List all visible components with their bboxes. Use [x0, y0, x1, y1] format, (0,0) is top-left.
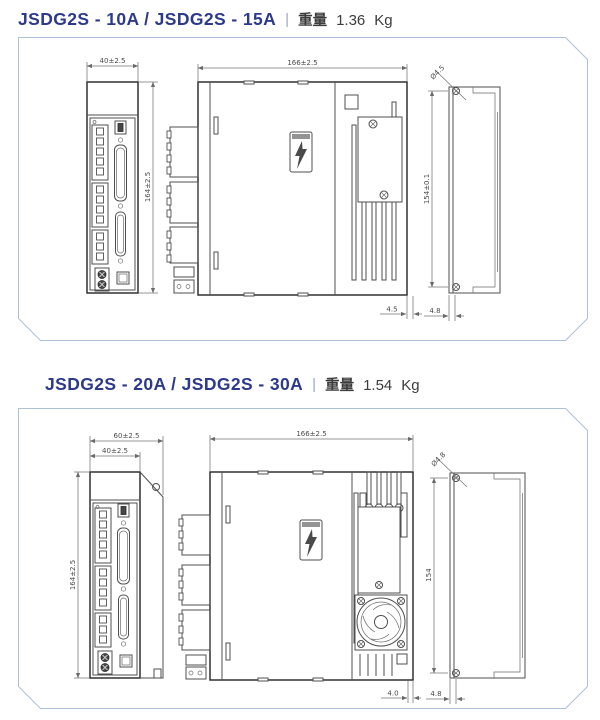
- title-separator: |: [285, 11, 289, 28]
- dim-label-thickness: 4.8: [430, 690, 441, 698]
- mounting-plate: [358, 507, 400, 593]
- dimension-drawing-panel-1: 40±2.5 164±2.5: [18, 37, 588, 341]
- dim-label-side-gap: 4.5: [386, 306, 397, 314]
- weight-label: 重量: [298, 9, 327, 30]
- dim-label-side-gap: 4.0: [387, 690, 398, 698]
- dimension-drawing-panel-2: 60±2.5 40±2.5 164±2.5: [18, 408, 588, 709]
- weight-label: 重量: [325, 374, 354, 395]
- title-separator: |: [312, 376, 316, 393]
- weight-unit: Kg: [401, 377, 419, 394]
- weight-value: 1.54: [363, 377, 392, 394]
- cooling-fan-icon: [355, 595, 407, 650]
- section1-title: JSDG2S - 10A / JSDG2S - 15A | 重量 1.36 Kg: [18, 9, 393, 30]
- mounting-plate: [358, 117, 402, 202]
- dim-label-front-height: 164±2.5: [144, 172, 152, 202]
- dim-label-side-width: 166±2.5: [296, 430, 326, 438]
- dim-label-side-width: 166±2.5: [287, 59, 317, 67]
- model-name: JSDG2S - 20A / JSDG2S - 30A: [45, 374, 303, 395]
- dim-label-thickness: 4.8: [429, 307, 440, 315]
- model-name: JSDG2S - 10A / JSDG2S - 15A: [18, 9, 276, 30]
- dim-label-hole-pitch: 154±0.1: [423, 174, 431, 204]
- section2-title: JSDG2S - 20A / JSDG2S - 30A | 重量 1.54 Kg: [45, 374, 420, 395]
- dim-label-front-height: 164±2.5: [69, 560, 77, 590]
- dim-label-front-width: 40±2.5: [100, 57, 126, 65]
- weight-unit: Kg: [374, 12, 392, 29]
- dim-label-front-outer-width: 60±2.5: [114, 432, 140, 440]
- weight-value: 1.36: [336, 12, 365, 29]
- dim-label-front-width: 40±2.5: [102, 447, 128, 455]
- dim-label-hole-pitch: 154: [425, 568, 433, 582]
